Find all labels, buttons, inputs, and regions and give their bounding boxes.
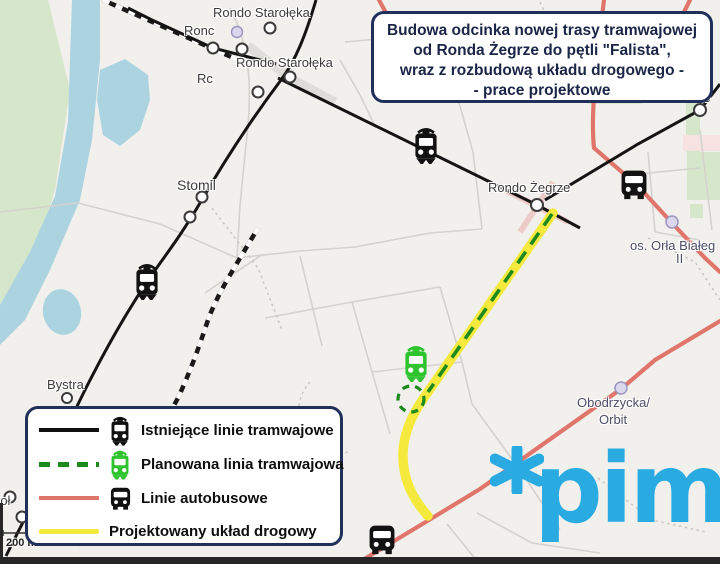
title-line-3: wraz z rozbudową układu drogowego - [378, 61, 706, 81]
tram-icon [411, 125, 441, 165]
map-label-rondo-staroleka: Rondo Starołęka [213, 5, 310, 20]
map-label-obodrzycka: Obodrzycka/ [577, 395, 650, 410]
legend-line-planned-tram [39, 462, 99, 467]
legend-row-planned-tram: Planowana linia tramwajowa [28, 448, 340, 480]
bus-icon [618, 166, 650, 202]
map-label-orbit: Orbit [599, 412, 627, 427]
title-box: Budowa odcinka nowej trasy tramwajowej o… [371, 11, 713, 103]
legend-box: Istniejące linie tramwajowe Planowana li… [25, 406, 343, 546]
map-frame-left [0, 503, 3, 564]
map-label-os-orla-bialego: os. Orła Białeg [630, 238, 715, 253]
tram-icon-planned [401, 343, 431, 383]
tram-icon-planned [108, 449, 132, 480]
bus-icon [108, 485, 133, 511]
legend-line-bus [39, 496, 99, 500]
legend-label-planned-road: Projektowany układ drogowy [109, 523, 317, 540]
legend-row-existing-tram: Istniejące linie tramwajowe [28, 414, 340, 446]
legend-label-planned-tram: Planowana linia tramwajowa [141, 456, 344, 473]
tram-icon [108, 415, 132, 446]
map-label-os-orla-bialego-ii: II [676, 251, 683, 266]
map-label-stomil: Stomil [177, 177, 216, 193]
legend-label-bus: Linie autobusowe [141, 490, 268, 507]
title-line-2: od Ronda Żegrze do pętli "Falista", [378, 41, 706, 61]
legend-row-bus-lines: Linie autobusowe [28, 482, 340, 514]
map-label-rondo-staroleka-2: Rondo Starołęka [236, 55, 333, 70]
legend-line-planned-road [39, 529, 99, 534]
map-label-rc: Rc [197, 71, 213, 86]
map-label-bystra: Bystra [47, 377, 84, 392]
bus-icon [366, 521, 398, 557]
legend-label-existing-tram: Istniejące linie tramwajowe [141, 422, 334, 439]
map-screenshot: Rondo Starołęka Ronc Rondo Starołęka Rc … [0, 0, 720, 564]
title-line-4: - prace projektowe [378, 81, 706, 101]
title-line-1: Budowa odcinka nowej trasy tramwajowej [378, 21, 706, 41]
tram-icon [132, 261, 162, 301]
pim-logo: pim [534, 441, 720, 537]
legend-row-planned-road: Projektowany układ drogowy [28, 515, 340, 547]
map-label-ronc: Ronc [184, 23, 214, 38]
map-frame-bottom [0, 557, 720, 564]
legend-line-existing-tram [39, 428, 99, 432]
map-label-rondo-zegrze: Rondo Żegrze [488, 180, 570, 195]
